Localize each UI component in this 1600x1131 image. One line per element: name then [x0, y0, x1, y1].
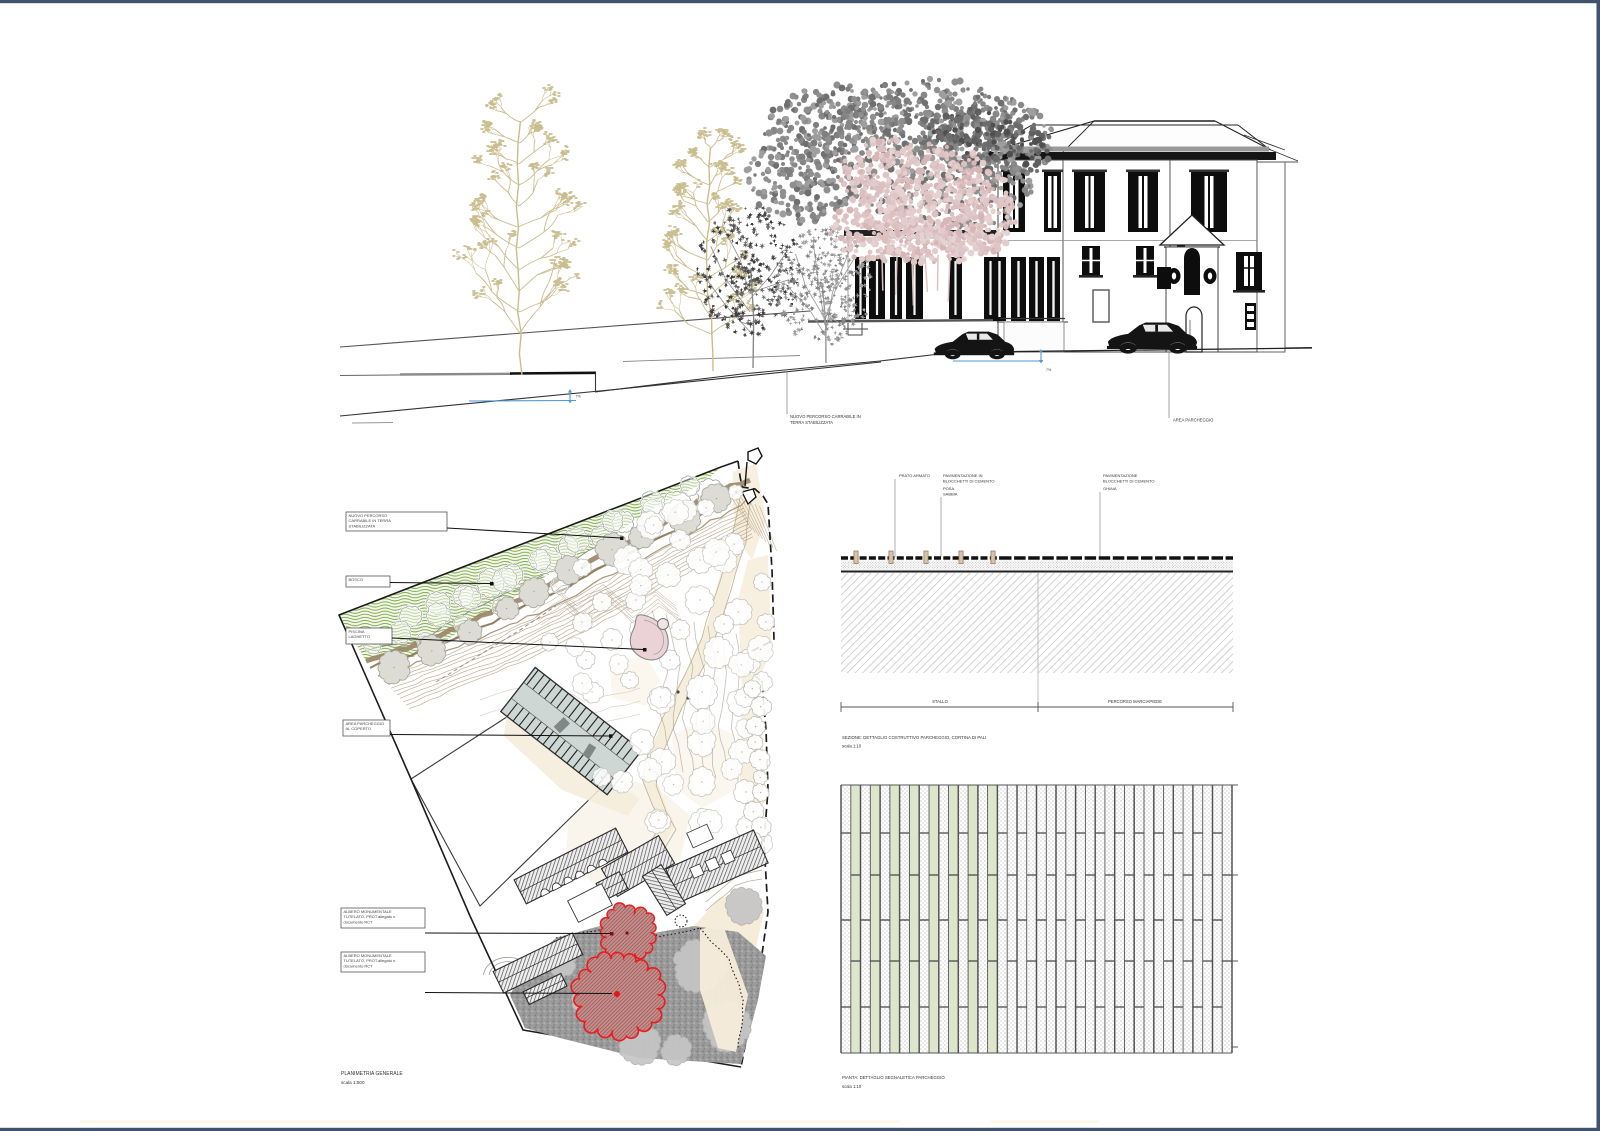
svg-text:scala 1:10: scala 1:10 [842, 1084, 862, 1089]
svg-text:TERRA STABILIZZATA: TERRA STABILIZZATA [790, 420, 833, 425]
svg-text:PAVIMENTAZIONE IN: PAVIMENTAZIONE IN [943, 473, 983, 478]
svg-text:LAGHETTO: LAGHETTO [349, 634, 371, 639]
svg-text:AL COPERTO: AL COPERTO [346, 726, 372, 731]
svg-text:NUOVO PERCORSO CARRABILE IN: NUOVO PERCORSO CARRABILE IN [790, 414, 861, 419]
svg-text:POSA: POSA [943, 486, 954, 491]
svg-text:7%: 7% [1046, 368, 1052, 372]
svg-text:BOSCO: BOSCO [349, 577, 363, 582]
svg-text:AREA PARCHEGGIO: AREA PARCHEGGIO [1173, 418, 1214, 423]
svg-text:BLOCCHETTI DI CEMENTO: BLOCCHETTI DI CEMENTO [943, 479, 995, 484]
svg-text:scala 1:10: scala 1:10 [842, 744, 862, 749]
svg-text:scala 1:500: scala 1:500 [341, 1080, 365, 1085]
svg-text:STABILIZZATA: STABILIZZATA [349, 523, 376, 528]
svg-text:PIANTA: DETTAGLIO SEGNALETICA: PIANTA: DETTAGLIO SEGNALETICA PARCHEGGIO [842, 1075, 945, 1080]
svg-text:SABBIA: SABBIA [943, 492, 958, 497]
svg-text:PRATO ARMATO: PRATO ARMATO [899, 473, 930, 478]
svg-text:GHIAIA: GHIAIA [1103, 486, 1117, 491]
svg-text:documento RCT: documento RCT [344, 919, 374, 924]
svg-text:documento RCT: documento RCT [344, 963, 374, 968]
svg-text:STALLO: STALLO [932, 699, 948, 704]
svg-text:7%: 7% [576, 395, 582, 399]
svg-text:PLANIMETRIA GENERALE: PLANIMETRIA GENERALE [341, 1071, 403, 1077]
svg-text:PERCORSO MARCIAPIEDE: PERCORSO MARCIAPIEDE [1108, 699, 1162, 704]
svg-text:SEZIONE: DETTAGLIO COSTRUTTIVO: SEZIONE: DETTAGLIO COSTRUTTIVO PARCHEGGI… [842, 735, 986, 740]
svg-text:PAVIMENTAZIONE: PAVIMENTAZIONE [1103, 473, 1138, 478]
svg-text:BLOCCHETTI DI CEMENTO: BLOCCHETTI DI CEMENTO [1103, 479, 1155, 484]
